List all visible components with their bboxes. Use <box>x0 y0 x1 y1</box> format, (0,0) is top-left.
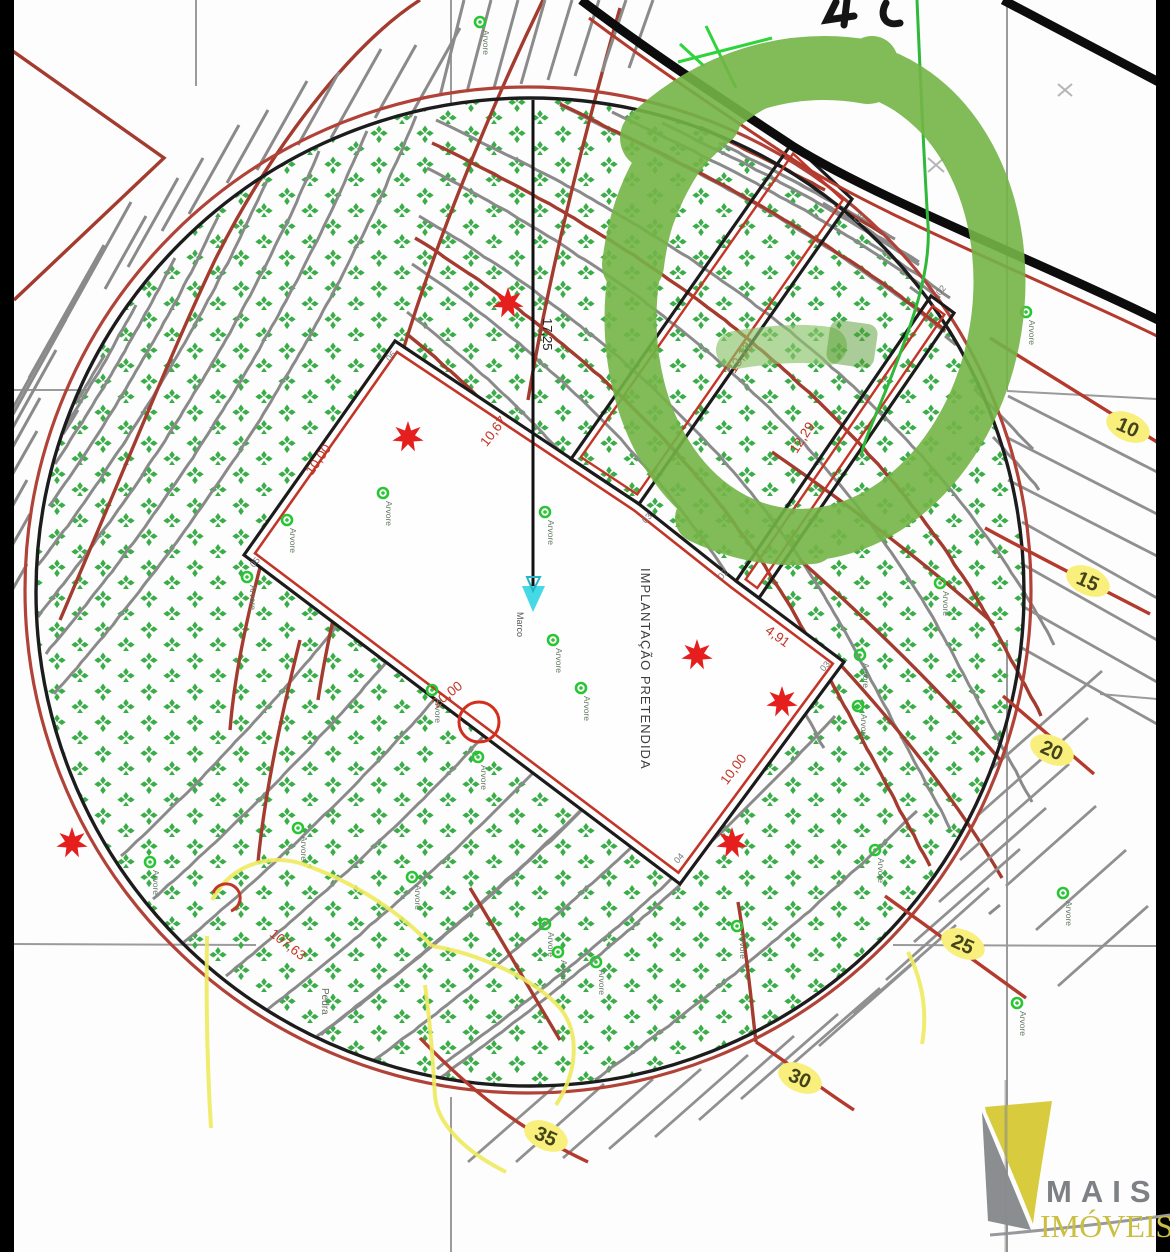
svg-text:Arvore: Arvore <box>299 836 309 861</box>
svg-text:Arvore: Arvore <box>738 934 748 959</box>
svg-text:Arvore: Arvore <box>861 663 871 688</box>
svg-text:Arvore: Arvore <box>1018 1011 1028 1036</box>
svg-text:Arvore: Arvore <box>546 520 556 545</box>
svg-text:Arvore: Arvore <box>582 696 592 721</box>
svg-text:Pedra: Pedra <box>319 988 330 1015</box>
svg-text:Arvore: Arvore <box>433 698 443 723</box>
svg-text:IMÓVEIS: IMÓVEIS <box>1040 1208 1170 1244</box>
svg-text:Arvore: Arvore <box>288 528 298 553</box>
svg-text:Arvore: Arvore <box>859 714 869 739</box>
svg-text:Arvore: Arvore <box>876 858 886 883</box>
svg-text:Arvore: Arvore <box>481 30 491 55</box>
svg-text:Arvore: Arvore <box>413 885 423 910</box>
svg-text:Arvore: Arvore <box>1064 901 1074 926</box>
svg-text:Arvore: Arvore <box>384 501 394 526</box>
svg-text:Marco: Marco <box>515 612 525 637</box>
svg-text:Arvore: Arvore <box>1027 320 1037 345</box>
svg-text:IMPLANTAÇÃO PRETENDIDA: IMPLANTAÇÃO PRETENDIDA <box>638 568 653 770</box>
svg-text:Arvore: Arvore <box>597 970 607 995</box>
svg-text:Arvore: Arvore <box>559 960 569 985</box>
svg-text:Arvore: Arvore <box>479 765 489 790</box>
svg-text:Arvore: Arvore <box>941 591 951 616</box>
svg-text:Arvore: Arvore <box>248 585 258 610</box>
svg-text:17,25: 17,25 <box>540 318 555 351</box>
svg-text:MAIS: MAIS <box>1046 1174 1160 1209</box>
svg-text:Arvore: Arvore <box>554 648 564 673</box>
svg-text:Arvore: Arvore <box>151 870 161 895</box>
